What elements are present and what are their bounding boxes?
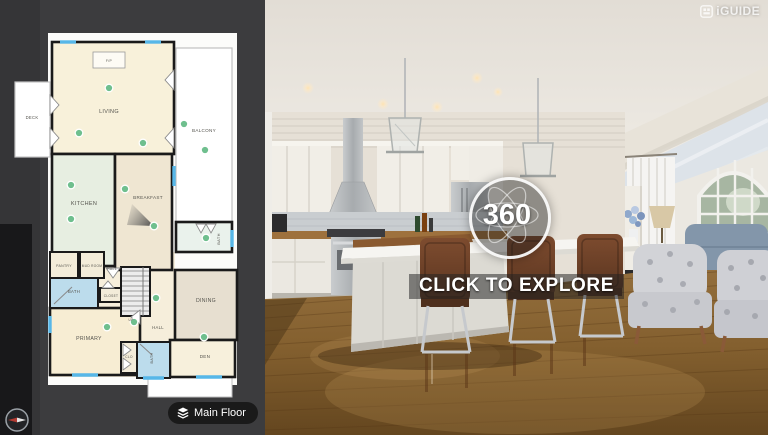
label-balcony: BALCONY <box>192 128 216 133</box>
hotspot[interactable] <box>75 129 83 137</box>
room-dining <box>175 270 237 340</box>
compass-control[interactable] <box>4 407 30 433</box>
hotspot[interactable] <box>201 146 209 154</box>
floorplan-map[interactable]: LIVING F/P BALCONY DECK KITCHEN BREAKFAS… <box>0 0 265 435</box>
label-deck: DECK <box>26 115 39 120</box>
hotspot[interactable] <box>202 234 210 242</box>
hotspot[interactable] <box>139 139 147 147</box>
label-dining: DINING <box>196 298 216 304</box>
hotspot[interactable] <box>150 222 158 230</box>
label-primary: PRIMARY <box>76 336 102 342</box>
stairs-icon <box>121 267 150 316</box>
layers-icon <box>177 407 189 419</box>
hotspot[interactable] <box>180 120 188 128</box>
compass-icon <box>4 407 30 433</box>
floor-selector-button[interactable]: Main Floor <box>168 402 258 424</box>
label-living: LIVING <box>99 109 119 115</box>
label-breakfast: BREAKFAST <box>133 195 163 200</box>
hotspot[interactable] <box>67 181 75 189</box>
floorplan-panel: LIVING F/P BALCONY DECK KITCHEN BREAKFAS… <box>0 0 265 435</box>
floor-selector-label: Main Floor <box>194 407 246 419</box>
room-balcony <box>176 48 232 222</box>
label-closet: CLOSET <box>104 294 119 298</box>
label-bath-left: BATH <box>68 289 80 294</box>
hotspot[interactable] <box>103 323 111 331</box>
label-kitchen: KITCHEN <box>71 201 97 207</box>
virtual-tour-viewer: LIVING F/P BALCONY DECK KITCHEN BREAKFAS… <box>0 0 768 435</box>
label-bath-lower: BATH <box>150 352 154 363</box>
label-up: UP <box>128 318 133 322</box>
hotspot[interactable] <box>105 84 113 92</box>
label-hall-lower: HALL <box>152 325 164 330</box>
label-mud-room: MUD ROOM <box>82 264 103 268</box>
label-hall-upper: HALL <box>107 267 117 271</box>
hotspot[interactable] <box>152 294 160 302</box>
hotspot[interactable] <box>67 215 75 223</box>
room-kitchen <box>52 154 115 266</box>
label-fireplace: F/P <box>106 59 113 63</box>
label-pantry: PANTRY <box>56 264 72 268</box>
iguide-logo-text: iGUIDE <box>716 4 760 18</box>
badge-360-number: 360 <box>472 180 542 250</box>
hotspot[interactable] <box>121 185 129 193</box>
label-den: DEN <box>200 354 211 359</box>
badge-360[interactable]: 360 <box>469 177 551 259</box>
iguide-logo-icon <box>700 5 713 18</box>
label-bath-upper: BATH <box>216 233 221 245</box>
iguide-logo: iGUIDE <box>700 4 760 18</box>
hotspot[interactable] <box>200 333 208 341</box>
label-clo: CLO <box>125 355 133 359</box>
room-breakfast <box>115 154 172 270</box>
